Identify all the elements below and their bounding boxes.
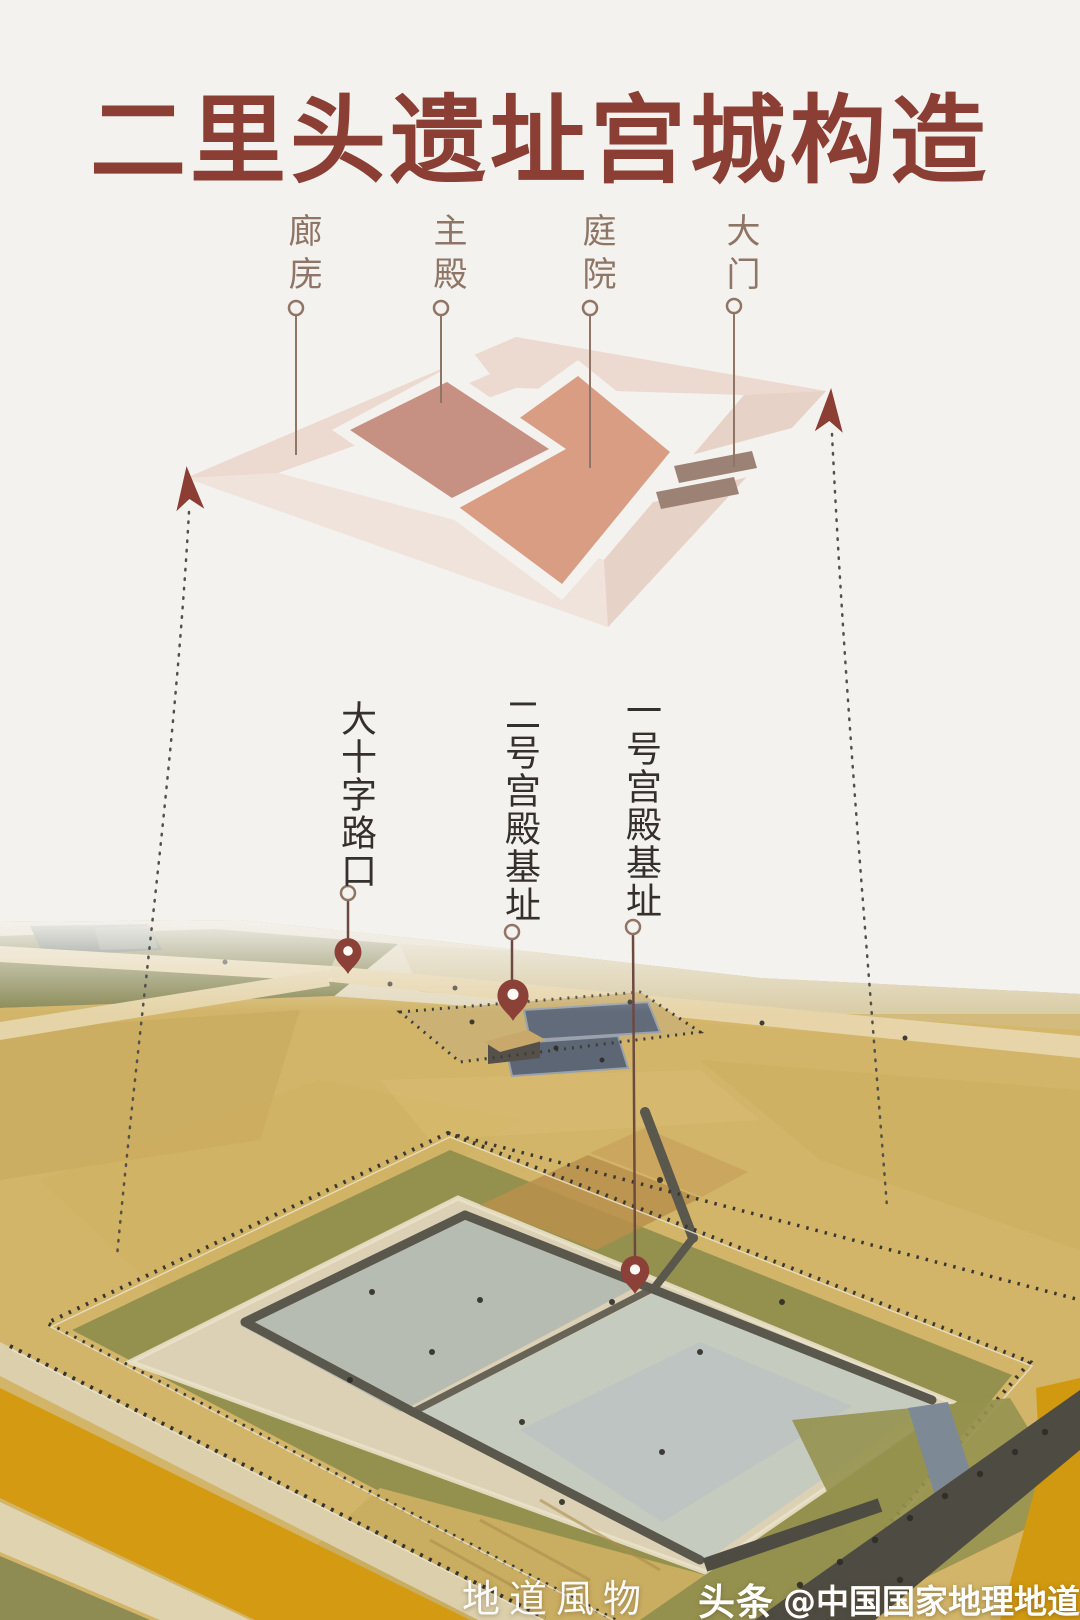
site-label-crossroads: 大十字路口 [329, 700, 381, 890]
site-label-palace2: 二号宫殿基址 [493, 696, 545, 924]
diagram-label-courtyard: 庭院 [572, 213, 621, 299]
watermark-credit: 头条 @中国国家地理地道风物 [698, 1572, 1080, 1620]
watermark-brand: 地道風物 [462, 1568, 650, 1620]
diagram-label-gate: 大门 [716, 213, 765, 299]
arrow-up-left [173, 465, 205, 511]
infographic-page: 二里头遗址宫城构造 廊庑 主殿 庭院 大门 大十字路口 二号宫殿基址 一号宫殿基… [0, 0, 1080, 1620]
aerial-photo [0, 916, 1080, 1620]
site-label-palace1: 一号宫殿基址 [614, 692, 666, 920]
toutiao-logo: 头条 [698, 1572, 774, 1620]
diagram-label-main-hall: 主殿 [423, 213, 472, 299]
palace-diagram [186, 337, 826, 627]
watermark-handle: @中国国家地理地道风物 [783, 1575, 1080, 1620]
diagram-label-corridor: 廊庑 [278, 213, 327, 299]
page-title: 二里头遗址宫城构造 [0, 86, 1080, 204]
